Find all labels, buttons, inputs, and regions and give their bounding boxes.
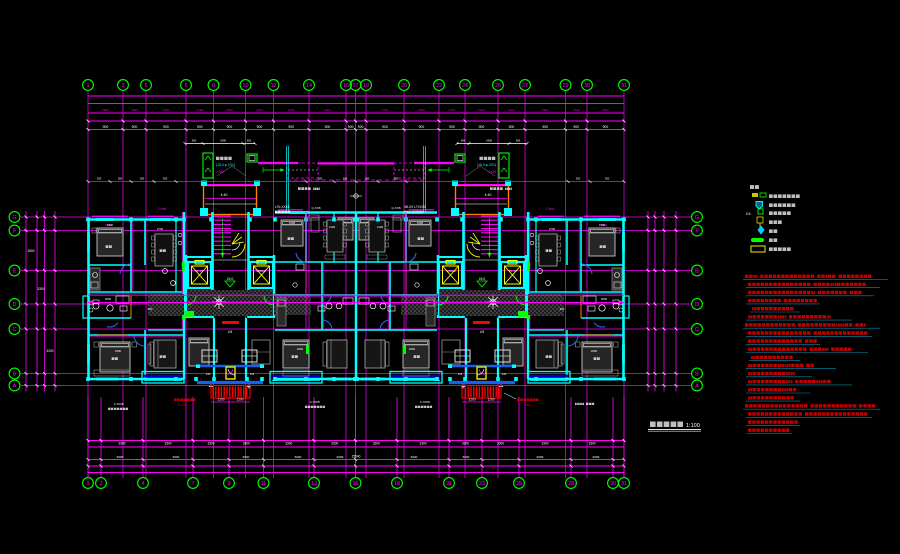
svg-text:2900: 2900 — [542, 108, 549, 112]
svg-text:600: 600 — [247, 139, 252, 143]
svg-text:16: 16 — [352, 481, 358, 487]
svg-text:900: 900 — [382, 125, 388, 129]
svg-text:900: 900 — [573, 125, 579, 129]
svg-text:2700: 2700 — [549, 227, 556, 231]
svg-text:17: 17 — [352, 83, 358, 89]
svg-text:1800: 1800 — [409, 347, 416, 351]
svg-text:2400: 2400 — [418, 108, 425, 112]
svg-text:300: 300 — [140, 177, 145, 181]
svg-text:2400: 2400 — [486, 139, 492, 143]
svg-text:3300: 3300 — [462, 442, 469, 446]
svg-text:X-XX: X-XX — [178, 403, 186, 407]
svg-text:4B-XX L7XXXX: 4B-XX L7XXXX — [404, 205, 427, 209]
svg-text:1050KG: 1050KG — [446, 269, 456, 273]
svg-text:2100: 2100 — [508, 108, 515, 112]
svg-text:1800: 1800 — [105, 297, 112, 301]
svg-text:10: 10 — [242, 83, 248, 89]
svg-text:6000: 6000 — [537, 455, 544, 459]
svg-text:900: 900 — [348, 125, 354, 129]
svg-text:3300: 3300 — [118, 442, 125, 446]
svg-text:3300: 3300 — [331, 442, 338, 446]
svg-text:6000: 6000 — [411, 455, 418, 459]
svg-text:b.70X8: b.70X8 — [310, 400, 320, 404]
svg-text:1M: 1M — [502, 372, 507, 376]
svg-text:4500: 4500 — [27, 249, 34, 253]
svg-text:900: 900 — [325, 125, 331, 129]
svg-text:2100: 2100 — [377, 225, 384, 229]
svg-text:3300: 3300 — [37, 287, 44, 291]
svg-text:21: 21 — [446, 481, 452, 487]
svg-text:24.0: 24.0 — [227, 277, 234, 281]
svg-text:30: 30 — [610, 481, 616, 487]
svg-text:16: 16 — [343, 83, 349, 89]
svg-text:3300: 3300 — [591, 349, 598, 353]
svg-text:900: 900 — [560, 307, 565, 311]
svg-text:3300: 3300 — [497, 442, 504, 446]
svg-text:3300: 3300 — [588, 442, 595, 446]
svg-text:900: 900 — [192, 139, 197, 143]
svg-text:XX XX: XX XX — [195, 269, 203, 273]
svg-text:300: 300 — [605, 177, 610, 181]
svg-text:1800: 1800 — [297, 347, 304, 351]
svg-text:Q-XX8: Q-XX8 — [311, 206, 320, 210]
svg-text:30: 30 — [584, 83, 590, 89]
svg-text:6000: 6000 — [243, 455, 250, 459]
svg-text:1M: 1M — [458, 372, 463, 376]
svg-text:28: 28 — [568, 481, 574, 487]
svg-text:1M: 1M — [206, 372, 211, 376]
svg-text:3300: 3300 — [541, 442, 548, 446]
svg-text:7: 7 — [191, 481, 194, 487]
svg-text:1800: 1800 — [601, 297, 608, 301]
svg-text:13: 13 — [311, 481, 317, 487]
svg-text:300: 300 — [118, 177, 123, 181]
svg-text:XXX-XXXXXX: XXX-XXXXXX — [404, 210, 425, 214]
svg-text:12: 12 — [270, 83, 276, 89]
svg-text:6000: 6000 — [295, 455, 302, 459]
svg-text:300: 300 — [163, 177, 168, 181]
svg-text:1: 1 — [86, 481, 89, 487]
svg-text:6000: 6000 — [463, 455, 470, 459]
svg-text:26: 26 — [495, 83, 501, 89]
svg-text:18: 18 — [394, 481, 400, 487]
svg-text:600: 600 — [461, 139, 466, 143]
svg-text:900: 900 — [479, 125, 485, 129]
svg-text:900: 900 — [449, 125, 455, 129]
svg-text:6000: 6000 — [337, 455, 344, 459]
svg-text:E: E — [695, 269, 699, 275]
svg-text:900: 900 — [148, 307, 153, 311]
svg-text:31: 31 — [621, 83, 627, 89]
svg-text:3000: 3000 — [102, 108, 109, 112]
svg-text:2.4m4: 2.4m4 — [546, 207, 555, 211]
svg-text:G: G — [12, 215, 16, 221]
svg-text:L7b-XXXX: L7b-XXXX — [275, 205, 291, 209]
svg-text:-XXX: -XXX — [524, 403, 531, 407]
svg-text:2.4m4: 2.4m4 — [158, 207, 167, 211]
svg-text:Q-XX8: Q-XX8 — [391, 206, 400, 210]
svg-text:3600: 3600 — [131, 108, 138, 112]
svg-text:24.0: 24.0 — [479, 277, 486, 281]
svg-text:900: 900 — [358, 125, 364, 129]
svg-text:900: 900 — [197, 125, 203, 129]
svg-text:22: 22 — [436, 83, 442, 89]
svg-text:900: 900 — [288, 125, 294, 129]
svg-text:2600: 2600 — [602, 108, 609, 112]
svg-text:14: 14 — [306, 83, 312, 89]
svg-text:1200: 1200 — [163, 108, 170, 112]
svg-text:900: 900 — [542, 125, 548, 129]
svg-text:29: 29 — [562, 83, 568, 89]
svg-text:2700: 2700 — [288, 108, 295, 112]
svg-text:J.M0: J.M0 — [216, 170, 224, 174]
svg-text:2700: 2700 — [382, 108, 389, 112]
svg-text:C: C — [13, 327, 17, 333]
svg-text:11: 11 — [261, 481, 267, 487]
svg-text:1500: 1500 — [289, 221, 296, 225]
svg-text:3300: 3300 — [243, 442, 250, 446]
svg-text:3300: 3300 — [285, 442, 292, 446]
svg-text:XX XX: XX XX — [509, 269, 517, 273]
svg-text:3: 3 — [121, 83, 124, 89]
svg-text:LM: LM — [480, 330, 485, 334]
svg-text:8: 8 — [212, 83, 215, 89]
svg-text:4200: 4200 — [46, 349, 53, 353]
svg-text:900: 900 — [163, 125, 169, 129]
svg-text:900: 900 — [132, 125, 138, 129]
svg-text:1500: 1500 — [573, 108, 580, 112]
svg-text:1500: 1500 — [107, 223, 114, 227]
svg-text:2: 2 — [99, 481, 102, 487]
svg-text:G: G — [695, 215, 699, 221]
svg-text:D4: D4 — [746, 212, 751, 216]
svg-text:1200: 1200 — [487, 398, 494, 402]
svg-text:31: 31 — [621, 481, 627, 487]
svg-text:900: 900 — [516, 139, 521, 143]
svg-text:2100: 2100 — [329, 225, 336, 229]
svg-text:900: 900 — [227, 125, 233, 129]
svg-text:6000: 6000 — [117, 455, 124, 459]
svg-text:3300: 3300 — [164, 442, 171, 446]
svg-text:25: 25 — [516, 481, 522, 487]
svg-text:2700: 2700 — [157, 227, 164, 231]
svg-text:2100: 2100 — [256, 108, 263, 112]
svg-text:6: 6 — [184, 83, 187, 89]
svg-text:(16.0 φ 2X1): (16.0 φ 2X1) — [216, 163, 235, 167]
svg-text:900: 900 — [103, 125, 109, 129]
svg-text:1200: 1200 — [236, 398, 243, 402]
svg-text:A: A — [13, 384, 17, 390]
svg-text:25540: 25540 — [352, 455, 361, 459]
svg-text:900: 900 — [509, 125, 515, 129]
svg-text:300: 300 — [97, 177, 102, 181]
svg-text:1M: 1M — [250, 372, 255, 376]
svg-text:2400: 2400 — [220, 139, 226, 143]
svg-text:27: 27 — [522, 83, 528, 89]
svg-text:D: D — [13, 302, 17, 308]
svg-text:19: 19 — [363, 83, 369, 89]
svg-text:C: C — [695, 327, 699, 333]
svg-text:2100: 2100 — [196, 108, 203, 112]
svg-text:3300: 3300 — [373, 442, 380, 446]
svg-text:2400: 2400 — [478, 108, 485, 112]
svg-text:300: 300 — [576, 177, 581, 181]
svg-text:4.40: 4.40 — [485, 193, 492, 197]
svg-text:900: 900 — [419, 125, 425, 129]
svg-text:LM: LM — [228, 330, 233, 334]
svg-text:900: 900 — [603, 125, 609, 129]
svg-text:D: D — [695, 302, 699, 308]
svg-text:A: A — [695, 384, 699, 390]
svg-text:B: B — [695, 372, 699, 378]
svg-text:4.40: 4.40 — [221, 193, 228, 197]
svg-text:20: 20 — [401, 83, 407, 89]
svg-text:1200: 1200 — [468, 398, 475, 402]
svg-text:3300: 3300 — [419, 442, 426, 446]
svg-text:1: 1 — [86, 83, 89, 89]
svg-text:b.70X8: b.70X8 — [420, 400, 430, 404]
svg-text:B: B — [13, 372, 17, 378]
svg-text:1:100: 1:100 — [686, 423, 700, 429]
svg-text:b.70X8: b.70X8 — [114, 402, 124, 406]
svg-text:J.M0: J.M0 — [488, 170, 496, 174]
svg-text:4: 4 — [141, 481, 144, 487]
svg-text:24: 24 — [462, 83, 468, 89]
svg-text:3300: 3300 — [115, 349, 122, 353]
svg-text:6000: 6000 — [173, 455, 180, 459]
svg-text:1500: 1500 — [417, 221, 424, 225]
svg-text:1500: 1500 — [599, 223, 606, 227]
svg-text:9: 9 — [227, 481, 230, 487]
svg-text:E: E — [13, 269, 17, 275]
svg-text:1050KG: 1050KG — [256, 269, 266, 273]
svg-text:3300: 3300 — [207, 442, 214, 446]
svg-text:(16.0 φ 2X1): (16.0 φ 2X1) — [477, 163, 496, 167]
svg-text:23: 23 — [479, 481, 485, 487]
svg-text:6000: 6000 — [593, 455, 600, 459]
svg-text:2400: 2400 — [324, 108, 331, 112]
svg-text:2400: 2400 — [226, 108, 233, 112]
svg-text:5: 5 — [144, 83, 147, 89]
svg-text:2100: 2100 — [449, 108, 456, 112]
svg-text:1200: 1200 — [217, 398, 224, 402]
svg-text:900: 900 — [257, 125, 263, 129]
